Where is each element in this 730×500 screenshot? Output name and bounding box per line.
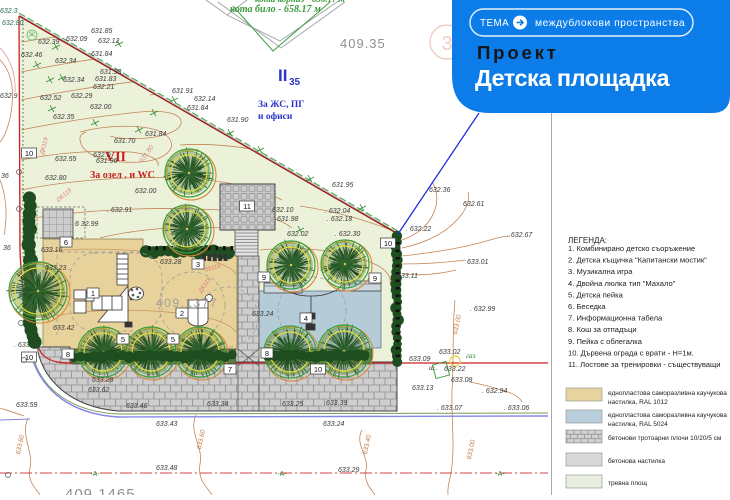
svg-text:633.28: 633.28 <box>92 377 114 384</box>
svg-text:11. Лостове за тренировки - съ: 11. Лостове за тренировки - съществуващи <box>568 360 721 369</box>
svg-text:632.39: 632.39 <box>38 39 60 46</box>
svg-text:631.83: 631.83 <box>95 76 117 83</box>
svg-text:632.34: 632.34 <box>63 77 85 84</box>
svg-text:633.11: 633.11 <box>397 273 418 280</box>
svg-text:631.84: 631.84 <box>91 51 113 58</box>
svg-text:631.98: 631.98 <box>100 69 122 76</box>
svg-text:. 632.04: . 632.04 <box>325 208 350 215</box>
svg-text:633.22: 633.22 <box>444 366 466 373</box>
svg-text:632.10: 632.10 <box>272 207 294 214</box>
svg-text:. 632.99: . 632.99 <box>470 306 495 313</box>
svg-text:633.62: 633.62 <box>88 387 110 394</box>
svg-text:632.61: 632.61 <box>463 201 485 208</box>
svg-text:. 632.67: . 632.67 <box>507 232 533 239</box>
svg-text:632.36: 632.36 <box>429 187 451 194</box>
svg-text:633.59: 633.59 <box>16 402 38 409</box>
svg-text:. 633.07: . 633.07 <box>437 405 463 412</box>
svg-text:. 632.22: . 632.22 <box>406 226 431 233</box>
svg-text:5: 5 <box>121 335 125 344</box>
svg-text:4. Двойна люлка тип "Махало": 4. Двойна люлка тип "Махало" <box>568 279 676 288</box>
svg-text:632.46: 632.46 <box>21 52 43 59</box>
svg-text:-А-: -А- <box>277 471 287 478</box>
svg-text:-А-: -А- <box>495 471 505 478</box>
svg-text:2: 2 <box>180 309 184 318</box>
svg-text:3: 3 <box>441 33 452 55</box>
svg-text:632.80: 632.80 <box>45 175 67 182</box>
svg-text:кота било - 658.17 м: кота било - 658.17 м <box>230 4 321 15</box>
svg-text:. 633.5: . 633.5 <box>14 342 36 349</box>
svg-text:632.09: 632.09 <box>66 36 88 43</box>
svg-text:еднопластова саморазливна кауч: еднопластова саморазливна каучукова <box>608 412 727 419</box>
svg-text:633.02: 633.02 <box>439 349 461 356</box>
svg-text:9: 9 <box>262 273 266 282</box>
svg-text:II: II <box>278 66 287 85</box>
svg-text:настилка, RAL 5024: настилка, RAL 5024 <box>608 421 668 428</box>
svg-text:632.21: 632.21 <box>93 84 115 91</box>
svg-text:11: 11 <box>243 202 251 211</box>
svg-text:409.1465: 409.1465 <box>65 486 136 495</box>
svg-text:ТЕМА: ТЕМА <box>480 18 509 29</box>
svg-text:10: 10 <box>25 353 33 362</box>
svg-text:633.13: 633.13 <box>412 385 434 392</box>
svg-text:632.52: 632.52 <box>40 95 62 102</box>
svg-text:. 632.91: . 632.91 <box>107 207 132 214</box>
svg-text:631.84: 631.84 <box>187 105 209 112</box>
svg-text:7: 7 <box>228 365 232 374</box>
svg-text:632.34: 632.34 <box>55 58 77 65</box>
svg-text:633.48: 633.48 <box>156 465 178 472</box>
svg-text:632.00: 632.00 <box>135 188 157 195</box>
svg-text:632.02: 632.02 <box>287 231 309 238</box>
svg-text:633.42: 633.42 <box>53 325 75 332</box>
svg-text:10: 10 <box>384 239 392 248</box>
svg-text:. 632.94: . 632.94 <box>482 388 507 395</box>
svg-text:5: 5 <box>171 335 175 344</box>
svg-text:Детска площадка: Детска площадка <box>475 65 670 91</box>
svg-text:Проект: Проект <box>477 42 559 63</box>
svg-text:632.29: 632.29 <box>71 93 93 100</box>
svg-text:631.96: 631.96 <box>96 158 118 165</box>
svg-text:7. Информационна табела: 7. Информационна табела <box>568 314 663 323</box>
svg-text:632.55: 632.55 <box>55 156 77 163</box>
svg-text:. 633.06: . 633.06 <box>504 405 529 412</box>
svg-text:632.14: 632.14 <box>194 96 216 103</box>
svg-text:633.16: 633.16 <box>41 247 63 254</box>
svg-text:За ЖС, ПГ: За ЖС, ПГ <box>258 100 304 110</box>
svg-text:2. Детска къщичка "Капитански: 2. Детска къщичка "Капитански мостик" <box>568 256 707 265</box>
svg-text:и офиси: и офиси <box>258 111 293 122</box>
svg-text:3: 3 <box>196 260 200 269</box>
svg-text:6: 6 <box>64 238 68 247</box>
svg-text:631.85: 631.85 <box>91 28 113 35</box>
svg-text:631.90: 631.90 <box>227 117 249 124</box>
svg-text:36: 36 <box>1 173 9 180</box>
svg-text:632.9: 632.9 <box>0 93 18 100</box>
svg-text:газ: газ <box>466 351 476 360</box>
svg-text:6 32.99: 6 32.99 <box>75 221 98 228</box>
svg-text:еднопластова саморазливна кауч: еднопластова саморазливна каучукова <box>608 390 727 397</box>
svg-text:. 632.18: . 632.18 <box>327 216 352 223</box>
svg-text:10: 10 <box>25 149 33 158</box>
svg-text:. 632.30: . 632.30 <box>335 231 360 238</box>
svg-text:633.01: 633.01 <box>467 259 489 266</box>
svg-text:633.46: 633.46 <box>126 403 148 410</box>
svg-text:633.29: 633.29 <box>338 467 360 474</box>
svg-text:8: 8 <box>66 350 70 359</box>
svg-text:тревна площ: тревна площ <box>608 480 648 487</box>
svg-text:409.35: 409.35 <box>340 36 386 51</box>
svg-text:631.95: 631.95 <box>332 182 354 189</box>
svg-text:633.09: 633.09 <box>409 356 431 363</box>
svg-text:3. Музикална игра: 3. Музикална игра <box>568 267 633 276</box>
svg-text:4: 4 <box>304 314 308 323</box>
svg-text:631.91: 631.91 <box>172 88 194 95</box>
svg-text:1: 1 <box>91 289 95 298</box>
svg-text:бетонова настилка: бетонова настилка <box>608 457 665 465</box>
svg-text:631.98: 631.98 <box>277 216 299 223</box>
svg-text:8. Кош за отпадъци: 8. Кош за отпадъци <box>568 325 637 334</box>
svg-text:междублокови пространства: междублокови пространства <box>535 17 685 29</box>
svg-text:633.23 .: 633.23 . <box>45 265 70 272</box>
svg-text:633.24: 633.24 <box>252 311 274 318</box>
svg-text:633.08: 633.08 <box>451 377 473 384</box>
svg-text:8: 8 <box>265 349 269 358</box>
svg-text:настилка, RAL 1012: настилка, RAL 1012 <box>608 399 668 406</box>
svg-text:6. Беседка: 6. Беседка <box>568 302 606 311</box>
svg-text:633.39: 633.39 <box>326 400 348 407</box>
svg-text:633.28: 633.28 <box>160 259 182 266</box>
svg-text:1. Комбинирано детско съоръжен: 1. Комбинирано детско съоръжение <box>568 244 695 253</box>
svg-text:9. Пейка с облегалка: 9. Пейка с облегалка <box>568 337 643 346</box>
svg-text:633.43: 633.43 <box>156 421 178 428</box>
svg-text:632.12: 632.12 <box>98 38 120 45</box>
svg-text:бетонови тротоарни плочи 10/20: бетонови тротоарни плочи 10/20/5 см <box>608 434 722 442</box>
svg-text:10. Дървена ограда с врати - Н: 10. Дървена ограда с врати - Н=1м. <box>568 348 694 357</box>
svg-text:35: 35 <box>289 77 301 88</box>
svg-text:За озел . и WC: За озел . и WC <box>90 170 155 181</box>
svg-text:632.80: 632.80 <box>2 20 24 27</box>
svg-text:633.24: 633.24 <box>323 421 345 428</box>
svg-text:631.84: 631.84 <box>145 131 167 138</box>
svg-text:-А-: -А- <box>90 471 100 478</box>
svg-text:633.34: 633.34 <box>207 401 229 408</box>
svg-text:632.3: 632.3 <box>0 8 18 15</box>
svg-text:631.70: 631.70 <box>114 138 136 145</box>
svg-text:633.25: 633.25 <box>282 401 304 408</box>
svg-text:36: 36 <box>3 245 11 252</box>
svg-text:632.35: 632.35 <box>53 114 75 121</box>
svg-text:632.00: 632.00 <box>90 104 112 111</box>
svg-text:5. Детска пейка: 5. Детска пейка <box>568 290 624 299</box>
svg-text:9: 9 <box>373 274 377 283</box>
svg-text:10: 10 <box>314 365 322 374</box>
